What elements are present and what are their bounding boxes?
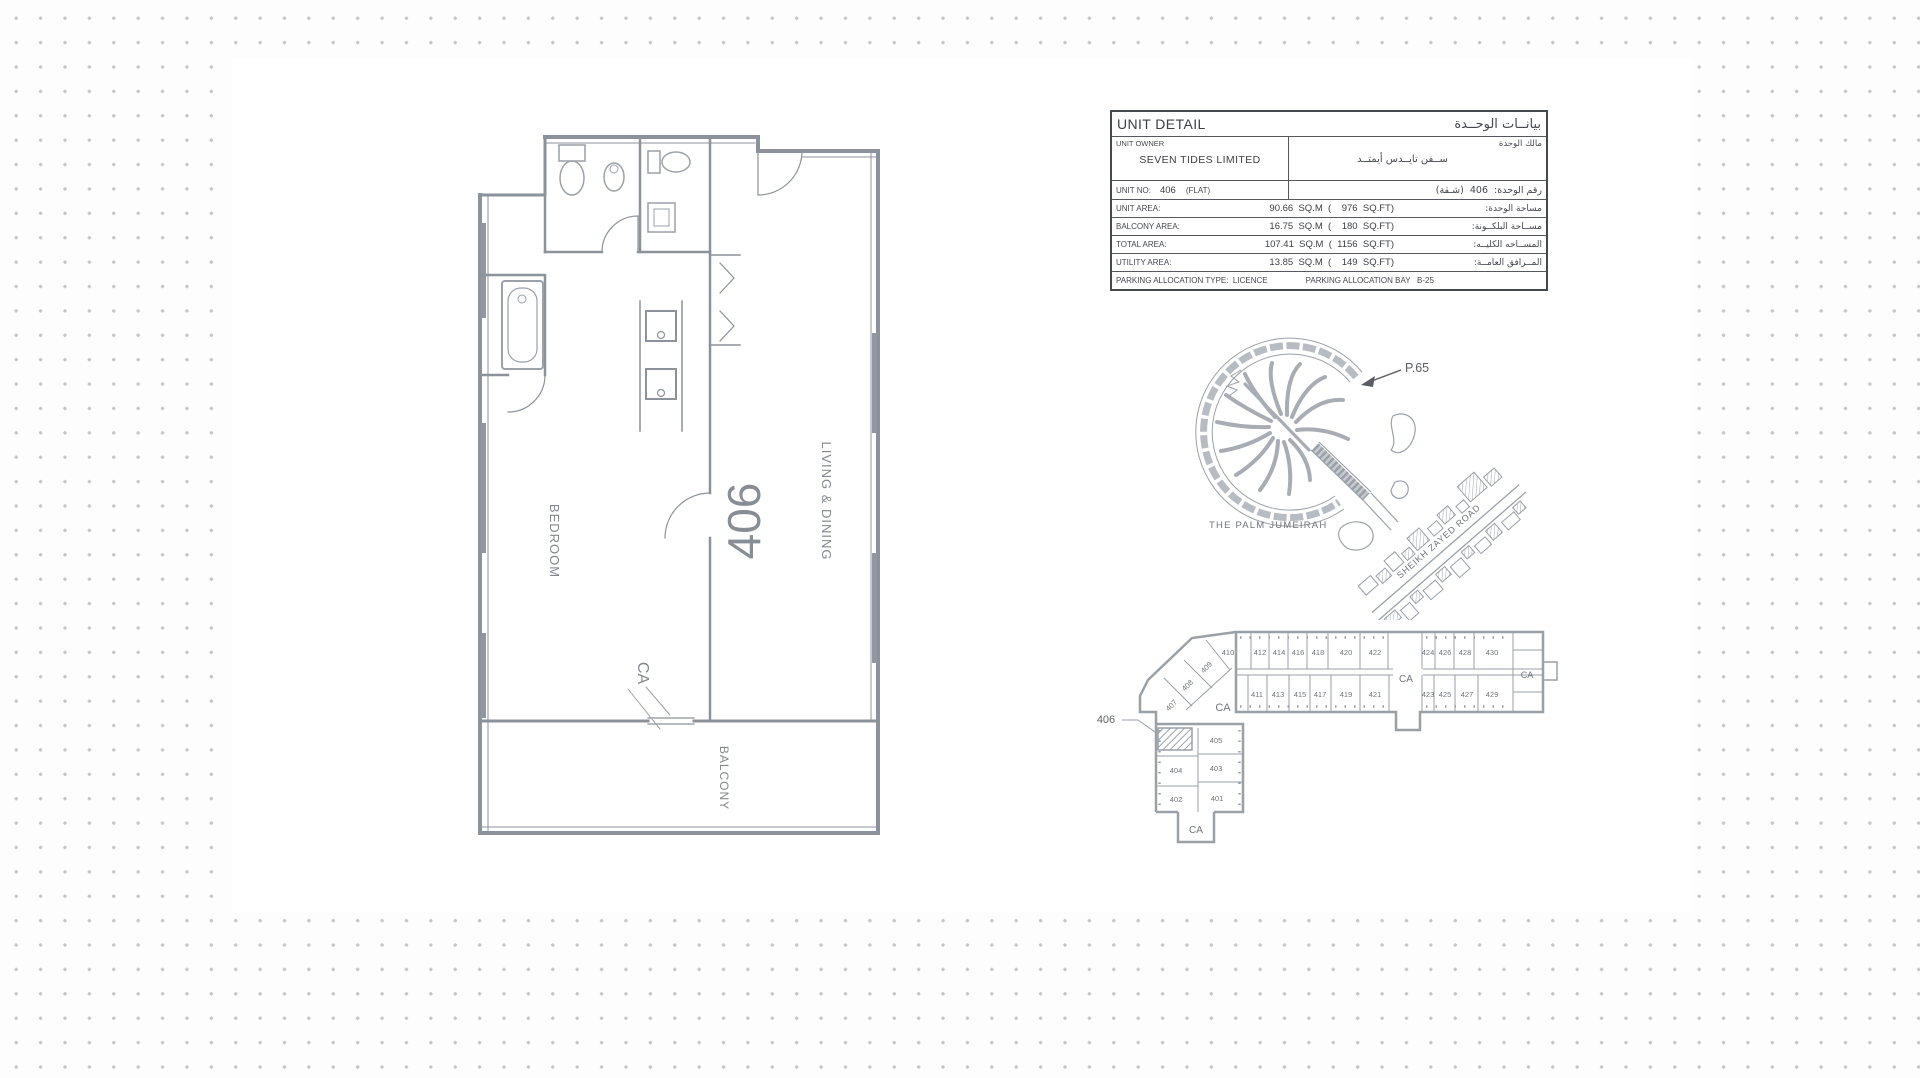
- unit-421: 421: [1369, 690, 1382, 699]
- unit-area-ar: مساحة الوحدة:: [1394, 204, 1546, 214]
- unit-406-highlight: [1158, 728, 1192, 750]
- table-title-en: UNIT DETAIL: [1117, 116, 1206, 132]
- floorplan-drawing: BEDROOM 406 LIVING & DINING CA BALCONY: [472, 123, 902, 843]
- unit-detail-table: UNIT DETAIL بيانــات الوحــدة UNIT OWNER…: [1110, 110, 1548, 291]
- balcony-area-row: BALCONY AREA: 16.75 SQ.M ( 180 SQ.FT) مس…: [1112, 217, 1546, 235]
- unit-414: 414: [1273, 648, 1286, 657]
- unit-409: 409: [1199, 660, 1214, 675]
- ca-label: CA: [634, 662, 651, 685]
- unit-417: 417: [1314, 690, 1327, 699]
- unit-408: 408: [1180, 678, 1195, 693]
- unit-411: 411: [1251, 690, 1263, 699]
- total-area-ar: المســاحه الكليــه:: [1394, 240, 1546, 250]
- unit-number-label: 406: [718, 483, 770, 560]
- ca-left-label: CA: [1215, 702, 1231, 714]
- unit-412: 412: [1254, 648, 1267, 657]
- palm-island: [1196, 338, 1415, 550]
- unit-415: 415: [1294, 690, 1307, 699]
- unit-401: 401: [1211, 794, 1224, 803]
- unit-424: 424: [1422, 648, 1435, 657]
- p65-label: P.65: [1405, 361, 1429, 375]
- parking-row: PARKING ALLOCATION TYPE: LICENCE PARKING…: [1112, 271, 1546, 289]
- unit-407: 407: [1164, 698, 1179, 713]
- utility-area-value: 13.85 SQ.M ( 149 SQ.FT): [1212, 257, 1394, 268]
- unit-427: 427: [1461, 690, 1474, 699]
- owner-row: UNIT OWNER SEVEN TIDES LIMITED مالك الوح…: [1112, 136, 1546, 180]
- table-title-ar: بيانــات الوحــدة: [1454, 117, 1541, 132]
- unit-no-type: (FLAT): [1186, 186, 1210, 195]
- unit-403: 403: [1210, 764, 1223, 773]
- unit-no-row: UNIT NO: 406 (FLAT) رقم الوحدة: 406 (شـق…: [1112, 180, 1546, 199]
- unit-405: 405: [1210, 736, 1223, 745]
- balcony-area-value: 16.75 SQ.M ( 180 SQ.FT): [1212, 221, 1394, 232]
- unit-423: 423: [1422, 690, 1435, 699]
- balcony-area-label: BALCONY AREA:: [1112, 222, 1212, 231]
- keyplan-walls: [1122, 632, 1557, 842]
- floorplan-walls: [480, 137, 878, 833]
- unit-418: 418: [1312, 648, 1325, 657]
- balcony-label: BALCONY: [717, 746, 731, 810]
- ca-right-label: CA: [1521, 670, 1534, 680]
- p65-arrowhead: [1361, 376, 1375, 387]
- unit-425: 425: [1439, 690, 1452, 699]
- total-area-row: TOTAL AREA: 107.41 SQ.M ( 1156 SQ.FT) ال…: [1112, 235, 1546, 253]
- owner-name-en: SEVEN TIDES LIMITED: [1112, 154, 1288, 166]
- location-map: SHEIKH ZAYED ROAD P.65 THE PALM JUMEIRAH: [1195, 330, 1545, 620]
- unit-area-value: 90.66 SQ.M ( 976 SQ.FT): [1212, 203, 1394, 214]
- unit-404: 404: [1170, 766, 1183, 775]
- utility-area-label: UTILITY AREA:: [1112, 258, 1212, 267]
- unit-416: 416: [1292, 648, 1305, 657]
- unit-area-row: UNIT AREA: 90.66 SQ.M ( 976 SQ.FT) مساحة…: [1112, 199, 1546, 217]
- unit-no-value: 406: [1160, 185, 1176, 196]
- utility-area-row: UTILITY AREA: 13.85 SQ.M ( 149 SQ.FT) ال…: [1112, 253, 1546, 271]
- unit-413: 413: [1272, 690, 1285, 699]
- unit-area-label: UNIT AREA:: [1112, 204, 1212, 213]
- unit-430: 430: [1486, 648, 1499, 657]
- total-area-label: TOTAL AREA:: [1112, 240, 1212, 249]
- parking-bay: PARKING ALLOCATION BAY B-25: [1306, 276, 1434, 285]
- unit-410: 410: [1222, 648, 1235, 657]
- floorplan-fixtures: [502, 145, 690, 729]
- ca-center-label: CA: [1399, 674, 1413, 685]
- unit-406-callout: 406: [1097, 714, 1115, 726]
- unit-422: 422: [1369, 648, 1382, 657]
- unit-420: 420: [1340, 648, 1353, 657]
- owner-label-en: UNIT OWNER: [1116, 139, 1164, 148]
- p65-marker: P.65: [1361, 361, 1429, 387]
- balcony-area-ar: مســاحة البلكــونة:: [1394, 222, 1546, 232]
- unit-428: 428: [1459, 648, 1472, 657]
- owner-label-ar: مالك الوحدة: [1499, 139, 1542, 149]
- unit-419: 419: [1340, 690, 1353, 699]
- ca-bottom-label: CA: [1189, 825, 1203, 836]
- utility-area-ar: المــرافق العامــة:: [1394, 258, 1546, 268]
- building-key-plan: 410 412 414 416 418 420 422 424 426 428 …: [1088, 612, 1568, 857]
- scanned-unit-plan-page: { "table": { "title_en": "UNIT DETAIL", …: [0, 0, 1920, 1078]
- unit-426: 426: [1439, 648, 1452, 657]
- unit-no-ar: رقم الوحدة: 406 (شـقة): [1436, 181, 1542, 199]
- parking-type: PARKING ALLOCATION TYPE: LICENCE: [1116, 276, 1268, 285]
- palm-jumeirah-label: THE PALM JUMEIRAH: [1209, 520, 1327, 531]
- total-area-value: 107.41 SQ.M ( 1156 SQ.FT): [1212, 239, 1394, 250]
- unit-402: 402: [1170, 795, 1183, 804]
- owner-name-ar: ســفن تايــدس أيمتــد: [1289, 154, 1516, 165]
- living-dining-label: LIVING & DINING: [819, 441, 834, 560]
- mainland-blocks: SHEIKH ZAYED ROAD: [1346, 455, 1539, 620]
- unit-429: 429: [1486, 690, 1499, 699]
- bedroom-label: BEDROOM: [547, 504, 562, 578]
- unit-no-label: UNIT NO:: [1116, 186, 1151, 195]
